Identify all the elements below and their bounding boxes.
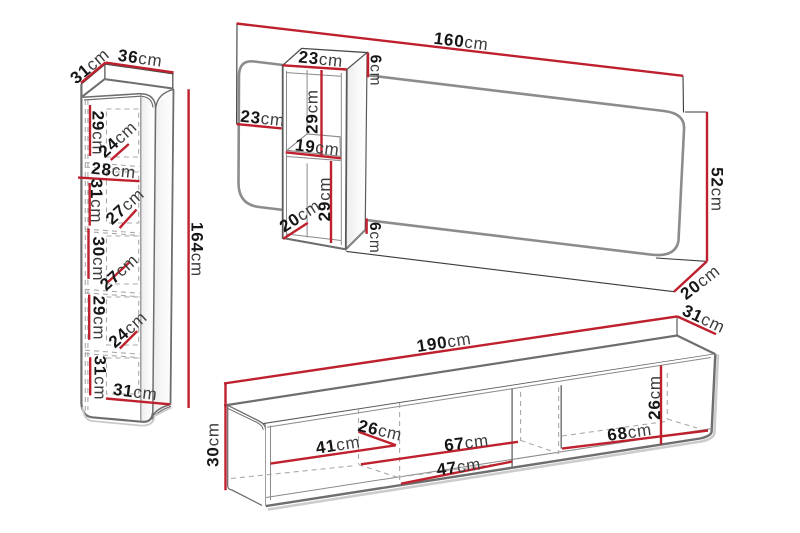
svg-text:29cm: 29cm: [89, 296, 108, 341]
svg-text:6cm: 6cm: [367, 55, 384, 87]
svg-text:29cm: 29cm: [303, 89, 322, 134]
svg-text:31cm: 31cm: [91, 356, 110, 401]
svg-text:52cm: 52cm: [708, 167, 727, 212]
svg-text:164cm: 164cm: [187, 222, 206, 277]
svg-text:6cm: 6cm: [366, 222, 383, 254]
svg-text:26cm: 26cm: [645, 375, 664, 420]
svg-text:30cm: 30cm: [204, 422, 223, 467]
